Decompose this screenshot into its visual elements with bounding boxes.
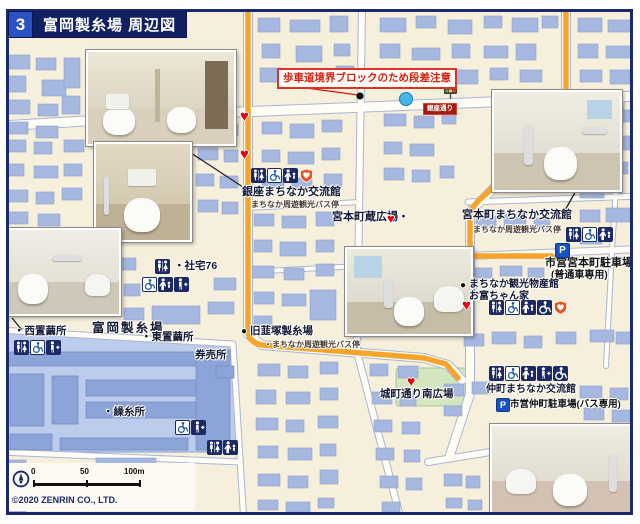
photo-restroom-stalls — [86, 50, 236, 146]
scale-tick-mark — [139, 480, 141, 487]
toilet-icon — [251, 168, 266, 183]
baby-seat-icon — [521, 300, 536, 315]
map-world: 歩車道境界ブロックのため段差注意 銀座通り ♥ ♥ ♥ ♥ ♥ 銀座まちなか交流… — [8, 11, 631, 513]
photo-accessible-room — [8, 228, 121, 316]
photo-detail — [52, 255, 82, 261]
photo-detail — [155, 69, 159, 122]
baby-seat-icon — [223, 440, 238, 455]
scale-tick-50: 50 — [80, 468, 89, 476]
title-index: 3 — [8, 11, 33, 38]
label-miyamoto-kura: 宮本町蔵広場・ — [332, 212, 409, 223]
wheelchair-assist-icon — [553, 366, 568, 381]
baby-seat-icon — [158, 277, 173, 292]
label-bussankan: まちなか観光物産館 — [469, 280, 559, 290]
wheelchair-assist-icon — [537, 300, 552, 315]
ostomate-icon — [174, 277, 189, 292]
photo-detail — [18, 274, 48, 304]
label-shataku-76: ・社宅76 — [174, 261, 217, 272]
heart-marker: ♥ — [387, 212, 395, 225]
label-ginza-kouryukan: 銀座まちなか交流館 — [242, 187, 341, 198]
label-miyamoto-busstop: まちなか周遊観光バス停 — [473, 226, 561, 234]
photo-detail — [205, 61, 228, 129]
pedestrian-crossing-icon — [399, 92, 413, 106]
parking-icon: P — [555, 243, 570, 258]
photo-detail — [167, 107, 196, 133]
wheelchair-icon — [505, 300, 520, 315]
facility-icons-nishi — [14, 340, 61, 355]
label-miyamoto-parking: 市営宮本町駐車場 — [545, 258, 631, 269]
ostomate-icon — [46, 340, 61, 355]
label-nishi-okimayujo: ・西置繭所 — [14, 326, 67, 337]
baby-seat-icon — [521, 366, 536, 381]
photo-detail — [524, 125, 533, 164]
scale-tick-mark — [86, 480, 88, 487]
copyright-notice: ©2020 ZENRIN CO., LTD. — [12, 496, 117, 505]
toilet-icon — [14, 340, 29, 355]
ostomate-icon — [191, 420, 206, 435]
label-nirazuka-busstop: ・まちなか周遊観光バス停 — [264, 341, 360, 349]
facility-icons-mill-1 — [175, 420, 206, 435]
label-nakamachi-kouryukan: 仲町まちなか交流館 — [486, 385, 576, 395]
warning-note: 歩車道境界ブロックのため段差注意 — [277, 68, 457, 89]
label-ticket-office: 券売所 — [195, 350, 227, 361]
label-shiromachi-plaza: 城町通り南広場 — [380, 389, 454, 400]
heart-marker: ♥ — [407, 374, 415, 388]
photo-detail — [609, 454, 617, 491]
photo-detail — [85, 274, 110, 296]
toilet-icon — [566, 227, 581, 242]
scale-tick-mark — [33, 480, 35, 487]
map-viewport: 歩車道境界ブロックのため段差注意 銀座通り ♥ ♥ ♥ ♥ ♥ 銀座まちなか交流… — [8, 11, 631, 513]
wheelchair-icon — [175, 420, 190, 435]
wheelchair-icon — [505, 366, 520, 381]
facility-icons-nakamachi — [489, 366, 568, 381]
wheelchair-icon — [142, 277, 157, 292]
toilet-icon — [207, 440, 222, 455]
photo-detail — [506, 469, 537, 494]
label-nakamachi-parking: 市営仲町駐車場(バス専用) — [510, 400, 621, 410]
heart-marker: ♥ — [240, 147, 249, 162]
photo-detail — [384, 278, 393, 309]
photo-accessible-washbasin — [345, 247, 473, 336]
photo-detail — [128, 169, 156, 186]
ostomate-icon — [537, 366, 552, 381]
wheelchair-icon — [582, 227, 597, 242]
wheelchair-icon — [267, 168, 282, 183]
poi-bullet: ● — [241, 327, 247, 337]
label-nirazuka: 旧韮塚製糸場 — [250, 326, 313, 337]
toilet-icon — [489, 300, 504, 315]
heart-marker: ♥ — [240, 109, 249, 124]
signal-name-badge: 銀座通り — [423, 103, 457, 115]
north-compass-icon — [12, 470, 30, 488]
photo-toilet-room-2 — [490, 424, 631, 513]
photo-detail — [544, 147, 577, 180]
scale-tick-0: 0 — [31, 468, 35, 476]
photo-detail — [582, 127, 607, 134]
poi-bullet: ● — [460, 281, 466, 291]
photo-detail — [106, 94, 129, 109]
label-miyamoto-parking-sub: (普通車専用) — [551, 271, 608, 281]
photo-accessible-grabbars — [492, 90, 622, 192]
facility-icons-mill-2 — [207, 440, 238, 455]
title-bar: 3 富岡製糸場 周辺図 — [8, 11, 187, 38]
toilet-icon — [155, 259, 170, 274]
photo-detail — [103, 107, 135, 135]
facility-icons-ginza — [251, 168, 314, 183]
photo-detail — [553, 474, 586, 506]
scale-tick-100m: 100m — [124, 468, 144, 476]
heart-marker: ♥ — [462, 298, 471, 313]
aed-icon — [553, 300, 568, 315]
map-page: 歩車道境界ブロックのため段差注意 銀座通り ♥ ♥ ♥ ♥ ♥ 銀座まちなか交流… — [0, 0, 640, 524]
facility-icons-shataku — [142, 277, 189, 292]
label-kurishitsujo: ・繰糸所 — [103, 407, 145, 418]
label-higashi-okimayujo: ・東置繭所 — [141, 332, 194, 343]
label-miyamoto-kouryukan: 宮本町まちなか交流館 — [462, 210, 572, 221]
photo-detail — [104, 177, 110, 215]
baby-seat-icon — [283, 168, 298, 183]
wheelchair-icon — [30, 340, 45, 355]
photo-detail — [354, 256, 381, 278]
warning-point-marker — [356, 92, 363, 99]
photo-toilet-room — [94, 142, 192, 242]
photo-detail — [394, 297, 424, 326]
toilet-icon — [489, 366, 504, 381]
baby-seat-icon — [598, 227, 613, 242]
aed-icon — [299, 168, 314, 183]
label-ginza-busstop: まちなか周遊観光バス停 — [251, 201, 339, 209]
facility-icons-miyamoto — [566, 227, 613, 242]
facility-icons-bussankan — [489, 300, 568, 315]
photo-detail — [587, 100, 612, 120]
photo-detail — [124, 198, 160, 233]
page-title: 富岡製糸場 周辺図 — [33, 11, 187, 38]
parking-icon: P — [496, 398, 510, 412]
